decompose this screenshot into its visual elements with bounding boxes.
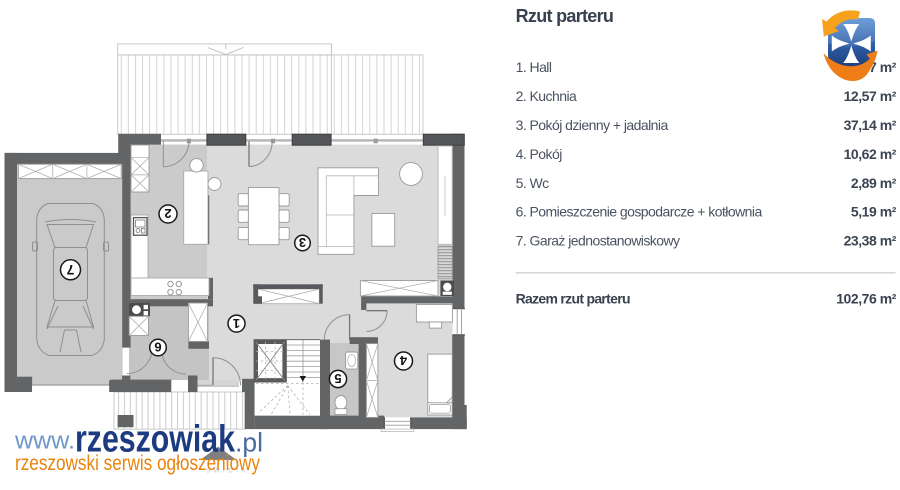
svg-text:102,76 m²: 102,76 m²	[836, 290, 897, 306]
svg-text:4: 4	[399, 353, 407, 368]
svg-text:5. Wc: 5. Wc	[516, 175, 550, 191]
svg-text:4. Pokój: 4. Pokój	[516, 146, 563, 162]
svg-text:1. Hall: 1. Hall	[516, 59, 552, 75]
svg-text:rzeszowski serwis ogłoszeniowy: rzeszowski serwis ogłoszeniowy	[15, 451, 260, 475]
svg-text:37,14 m²: 37,14 m²	[844, 117, 897, 133]
svg-text:Razem rzut parteru: Razem rzut parteru	[516, 290, 630, 306]
svg-text:10,62 m²: 10,62 m²	[844, 146, 897, 162]
svg-text:7. Garaż jednostanowiskowy: 7. Garaż jednostanowiskowy	[516, 233, 680, 249]
svg-text:1: 1	[233, 316, 240, 331]
svg-text:23,38 m²: 23,38 m²	[844, 233, 897, 249]
svg-text:6: 6	[154, 340, 161, 355]
svg-text:2: 2	[164, 206, 171, 221]
svg-text:Rzut parteru: Rzut parteru	[516, 6, 614, 26]
svg-text:2. Kuchnia: 2. Kuchnia	[516, 88, 577, 104]
svg-text:6. Pomieszczenie gospodarcze +: 6. Pomieszczenie gospodarcze + kotłownia	[516, 204, 763, 220]
svg-text:3. Pokój dzienny + jadalnia: 3. Pokój dzienny + jadalnia	[516, 117, 669, 133]
svg-text:3: 3	[299, 235, 306, 250]
svg-text:12,57 m²: 12,57 m²	[844, 88, 897, 104]
svg-text:5: 5	[334, 371, 341, 386]
svg-text:7: 7	[66, 262, 74, 278]
svg-text:2,89 m²: 2,89 m²	[851, 175, 897, 191]
svg-text:5,19 m²: 5,19 m²	[851, 204, 897, 220]
